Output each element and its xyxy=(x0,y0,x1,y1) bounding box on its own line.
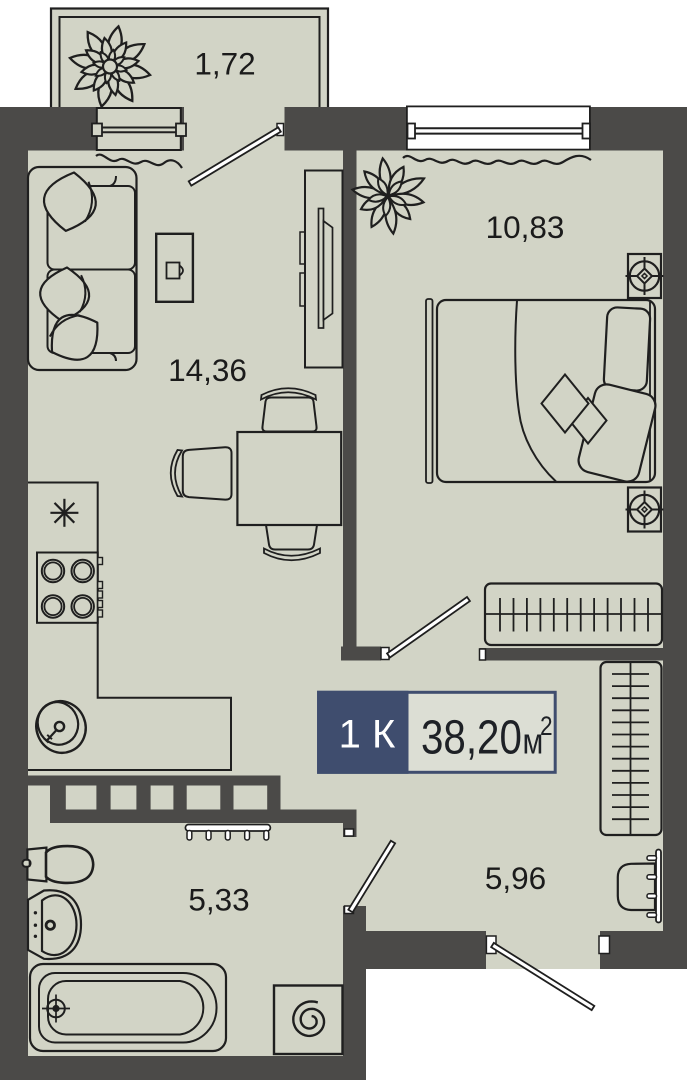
svg-text:2: 2 xyxy=(540,711,553,741)
svg-text:5,96: 5,96 xyxy=(485,860,546,896)
svg-text:1,72: 1,72 xyxy=(194,46,255,82)
svg-text:1 К: 1 К xyxy=(339,713,396,757)
svg-text:10,83: 10,83 xyxy=(486,209,565,245)
svg-text:14,36: 14,36 xyxy=(168,352,247,388)
svg-text:5,33: 5,33 xyxy=(188,882,249,918)
svg-text:38,20: 38,20 xyxy=(421,711,522,764)
